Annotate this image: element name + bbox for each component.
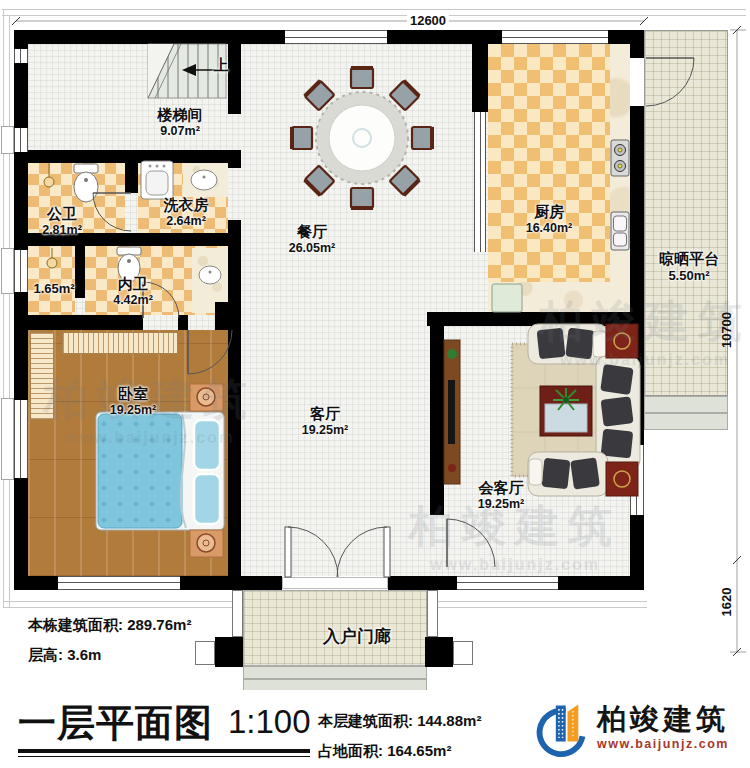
wall (14, 576, 58, 590)
bedroom-wardrobe-side (30, 332, 54, 420)
room-name: 内卫 (113, 275, 153, 293)
wall (14, 478, 28, 590)
window (630, 445, 644, 515)
stairs-up-label: 上 (214, 56, 229, 75)
room-area: 2.81m² (42, 222, 82, 237)
platform-step (644, 396, 728, 413)
room-label-ensuite: 内卫 4.42m² (113, 275, 153, 307)
brand-name: 柏竣建筑 (597, 705, 729, 734)
porch-column (425, 637, 453, 667)
room-name: 晾晒平台 (659, 250, 719, 268)
room-area: 16.40m² (526, 220, 573, 235)
window (457, 576, 558, 590)
wall (14, 30, 285, 44)
porch-step (243, 666, 427, 679)
room-area: 19.25m² (110, 402, 157, 417)
room-area: 26.05m² (289, 240, 336, 255)
wall (180, 576, 282, 590)
room-label-living: 客厅 19.25m² (302, 405, 349, 437)
room-label-stairwell: 楼梯间 9.07m² (158, 106, 203, 138)
wall (228, 44, 241, 114)
dimension-top: 12600 (407, 13, 449, 28)
stat-land-area: 占地面积: 164.65m² (318, 742, 451, 761)
room-name: 厨房 (526, 203, 573, 221)
room-area: 2.64m² (164, 213, 209, 228)
window (14, 49, 28, 63)
room-label-laundry: 洗衣房 2.64m² (164, 196, 209, 228)
wall (228, 150, 241, 168)
porch-side-step (195, 641, 215, 665)
window-sill (1, 248, 14, 294)
wall (387, 30, 502, 44)
floor-kitchen (488, 44, 610, 282)
room-name: 楼梯间 (158, 106, 203, 124)
stat-floor-height: 层高: 3.6m (28, 646, 101, 665)
room-label-public-bathroom: 公卫 2.81m² (42, 205, 82, 237)
plan-scale: 1:100 (228, 703, 311, 741)
room-label-drying-platform: 晾晒平台 5.50m² (659, 250, 719, 283)
stat-building-total-area: 本栋建筑面积: 289.76m² (28, 616, 191, 635)
wall (630, 44, 644, 58)
kitchen-walkway (488, 282, 610, 312)
window (14, 400, 28, 478)
wall (630, 515, 644, 577)
room-area: 19.25m² (478, 496, 525, 511)
room-area: 4.42m² (113, 292, 153, 307)
room-name: 公卫 (42, 205, 82, 223)
wall (28, 315, 143, 330)
window (14, 250, 28, 292)
wall (427, 312, 644, 326)
room-label-bedroom: 卧室 19.25m² (110, 385, 157, 417)
room-name: 卧室 (110, 385, 157, 403)
kitchen-counter (610, 44, 630, 312)
window (14, 128, 28, 152)
wall (28, 150, 233, 163)
eave-line (3, 9, 4, 608)
eave-line (2, 15, 746, 16)
brand-logo-icon (536, 698, 590, 758)
up-text: 上 (214, 56, 229, 73)
bedroom-wardrobe (62, 332, 178, 354)
wall (388, 576, 457, 590)
room-label-kitchen: 厨房 16.40m² (526, 203, 573, 235)
title-underline (18, 749, 310, 753)
wall (630, 106, 644, 445)
window (285, 30, 387, 44)
room-label-entry-porch: 入户门廊 (323, 627, 391, 647)
floor-drying-platform (644, 30, 728, 396)
platform-step (644, 413, 728, 430)
room-area: 1.65m² (33, 281, 74, 296)
window-sill (1, 398, 14, 480)
laundry-counter (183, 163, 228, 197)
dimension-right-main: 10700 (719, 309, 734, 351)
door-threshold (282, 577, 388, 589)
wall (75, 246, 85, 298)
dimension-right-porch: 1620 (719, 585, 734, 620)
porch-side-wall (427, 590, 438, 637)
porch-side-step (453, 641, 473, 665)
kitchen-sliding-door (474, 112, 486, 252)
room-area: 9.07m² (158, 123, 203, 138)
stat-floor-area: 本层建筑面积: 144.88m² (318, 712, 481, 731)
wall (14, 292, 28, 400)
wall (14, 152, 28, 250)
eave-line (9, 15, 10, 608)
wall (228, 220, 241, 576)
wall (430, 326, 444, 515)
wall (14, 63, 28, 128)
title-underline-thin (18, 756, 310, 757)
window (58, 576, 180, 590)
window (502, 30, 608, 44)
wall (125, 163, 138, 193)
wall (14, 30, 28, 49)
floor-bedroom (28, 330, 228, 576)
room-area: 5.50m² (659, 268, 719, 283)
room-label-closet: 1.65m² (33, 281, 74, 296)
porch-side-wall (232, 590, 243, 637)
room-name: 入户门廊 (323, 627, 391, 647)
wall (558, 576, 644, 590)
room-name: 洗衣房 (164, 196, 209, 214)
brand-website: www.baijunjz.com (597, 737, 729, 751)
room-name: 会客厅 (478, 479, 525, 497)
room-label-reception: 会客厅 19.25m² (478, 479, 525, 511)
room-name: 餐厅 (289, 223, 336, 241)
wall (608, 30, 644, 44)
plan-title: 一层平面图 (18, 698, 213, 749)
room-area: 19.25m² (302, 422, 349, 437)
wall (178, 315, 188, 330)
wall (215, 302, 241, 330)
brand-logo: 柏竣建筑 www.baijunjz.com (536, 698, 729, 758)
room-name: 客厅 (302, 405, 349, 423)
wall (472, 44, 488, 112)
floor-plan-page: 楼梯间 9.07m² 上 公卫 2.81m² 洗衣房 2.64m² 1.65m²… (0, 0, 750, 768)
porch-column (215, 637, 243, 667)
room-label-dining: 餐厅 26.05m² (289, 223, 336, 255)
title-block: 一层平面图 1:100 本层建筑面积: 144.88m² 占地面积: 164.6… (0, 690, 750, 768)
window-sill (1, 126, 14, 154)
eave-line (2, 9, 746, 10)
